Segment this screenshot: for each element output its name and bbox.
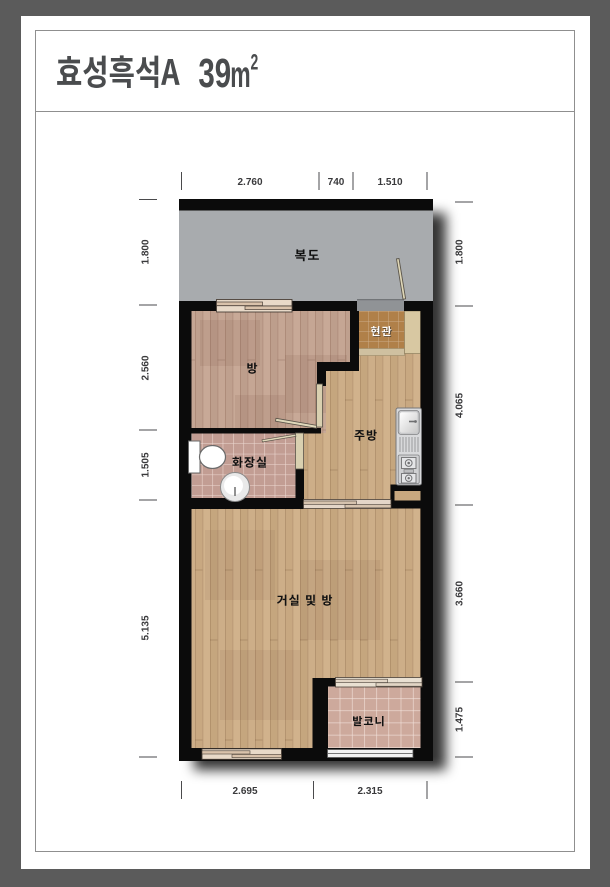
svg-text:2.695: 2.695 <box>232 786 257 797</box>
svg-text:1.475: 1.475 <box>455 707 466 732</box>
svg-text:1.800: 1.800 <box>141 239 152 264</box>
svg-text:1.510: 1.510 <box>377 177 402 188</box>
svg-text:5.135: 5.135 <box>141 615 152 640</box>
svg-text:2.560: 2.560 <box>141 355 152 380</box>
svg-text:2.760: 2.760 <box>237 177 262 188</box>
svg-text:740: 740 <box>328 177 345 188</box>
svg-text:3.660: 3.660 <box>455 581 466 606</box>
svg-text:2.315: 2.315 <box>357 786 382 797</box>
svg-text:1.800: 1.800 <box>455 239 466 264</box>
svg-text:4.065: 4.065 <box>455 393 466 418</box>
svg-text:1.505: 1.505 <box>141 452 152 477</box>
